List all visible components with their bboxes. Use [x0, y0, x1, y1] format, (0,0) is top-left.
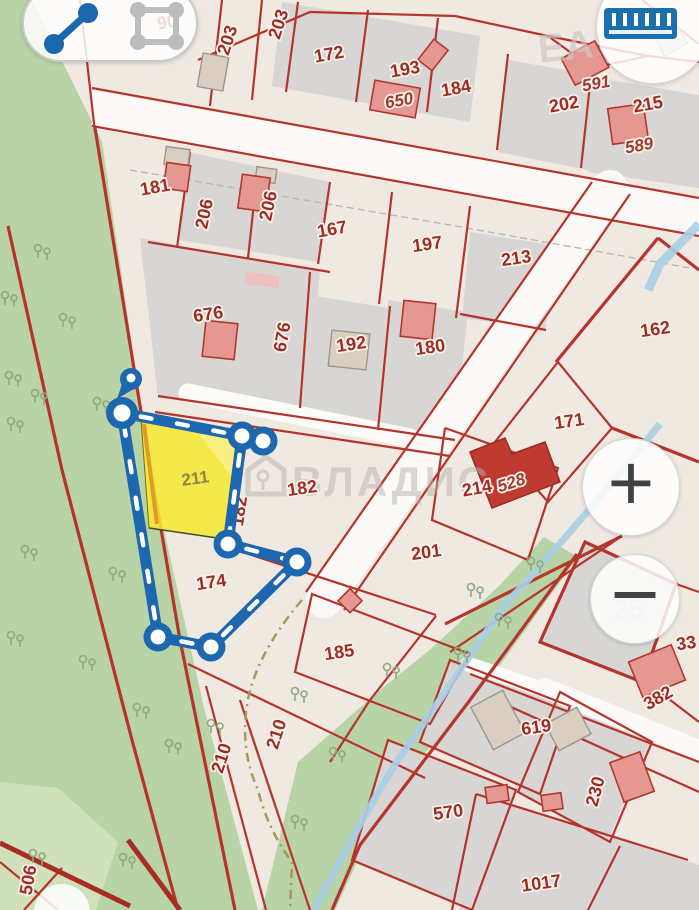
measure-vertex-vertex[interactable]	[144, 623, 173, 652]
zoom-out-button[interactable]: −	[590, 554, 680, 644]
parcel-label-197: 197	[411, 232, 444, 256]
measure-vertex-vertex[interactable]	[283, 548, 312, 577]
ruler-icon	[603, 7, 679, 41]
parcel-label-201: 201	[410, 540, 443, 564]
parcel-label-162: 162	[639, 317, 672, 341]
measure-toolbar	[22, 0, 198, 62]
measure-vertex-vertex[interactable]	[214, 530, 243, 559]
measure-vertex-vertex[interactable]	[228, 422, 257, 451]
parcel-label-171: 171	[553, 409, 586, 433]
parcel-label-211: 211	[180, 467, 210, 490]
parcel-label-180: 180	[414, 335, 447, 359]
parcel-label-33: 33	[675, 632, 698, 655]
parcel-label-185: 185	[323, 640, 356, 664]
parcel-label-174: 174	[195, 570, 228, 594]
parcel-label-182: 182	[286, 476, 319, 500]
parcel-label-619: 619	[520, 715, 553, 739]
zoom-in-button[interactable]: +	[582, 438, 680, 536]
parcel-label-570: 570	[432, 800, 465, 824]
polygon-measure-icon	[120, 0, 192, 56]
parcel-label-192: 192	[335, 332, 368, 356]
parcel-label-ЕА: ЕА	[536, 22, 596, 72]
parcel-label-676: 676	[192, 302, 225, 326]
measure-distance-tool-button[interactable]	[38, 0, 110, 56]
parcel-label-213: 213	[500, 246, 533, 270]
measure-vertex-vertex[interactable]	[197, 633, 226, 662]
measure-vertex-large[interactable]	[106, 397, 138, 429]
measure-area-tool-button[interactable]	[120, 0, 192, 56]
map-view: ВЛАДИС 902032031721936501842025912155891…	[0, 0, 699, 910]
polyline-measure-icon	[38, 0, 110, 56]
